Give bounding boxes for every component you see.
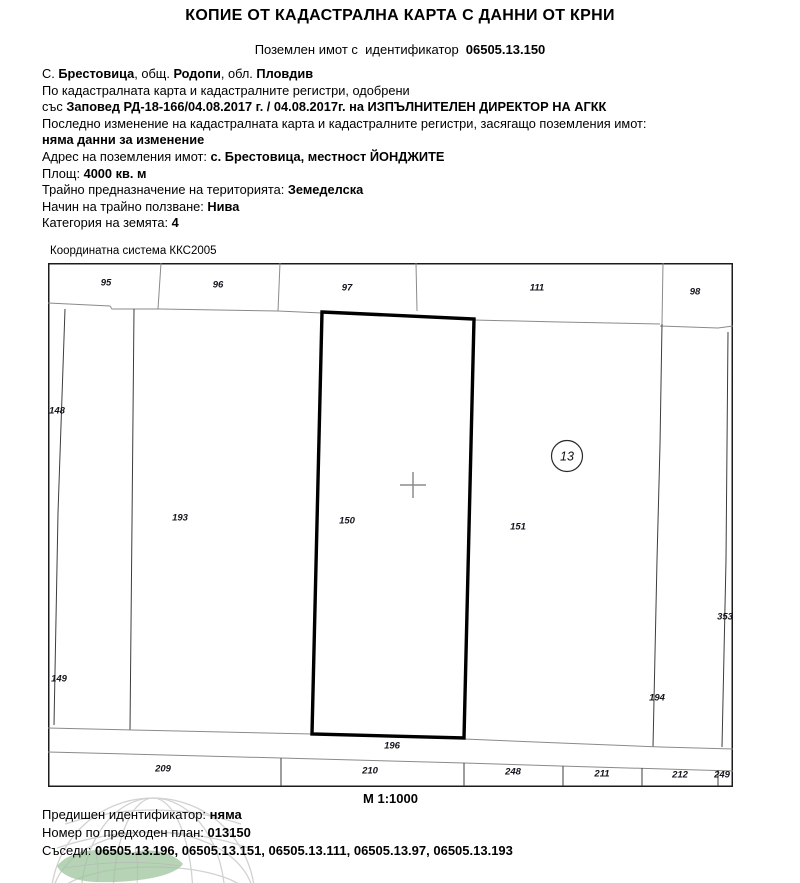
boundary-line [662,263,663,324]
cadastral-map: 13 9596971119814814919315015119435319620… [48,263,733,787]
boundary-line [660,326,733,328]
parcel-label-210: 210 [361,766,379,777]
text-run: Брестовица [58,66,134,81]
info-line: По кадастралната карта и кадастралните р… [42,83,646,100]
parcel-label-211: 211 [593,769,609,780]
parcel-label-98: 98 [690,287,701,298]
info-line: С. Брестовица, общ. Родопи, обл. Пловдив [42,66,646,83]
parcel-label-96: 96 [213,280,224,291]
text-run: Категория на земята: [42,215,172,230]
text-run: Площ: [42,166,84,181]
text-run: 4000 кв. м [84,166,147,181]
text-run: няма [210,807,242,822]
text-run: С. [42,66,58,81]
parcel-label-249: 249 [713,770,731,781]
boundary-line [653,324,662,747]
parcel-label-151: 151 [510,522,526,533]
info-line: Адрес на поземления имот: с. Брестовица,… [42,149,646,166]
page-title: КОПИЕ ОТ КАДАСТРАЛНА КАРТА С ДАННИ ОТ КР… [0,7,800,25]
parcel-label-149: 149 [51,674,68,685]
info-line: Категория на земята: 4 [42,215,646,232]
parcel-label-212: 212 [671,770,689,781]
text-run: Съседи: [42,843,95,858]
footer-info-block: Предишен идентификатор: нямаНомер по пре… [42,806,513,859]
text-run: , общ. [134,66,173,81]
parcel-label-148: 148 [49,406,66,417]
text-run: 06505.13.196, 06505.13.151, 06505.13.111… [95,843,513,858]
boundary-line [474,320,660,324]
info-line: Площ: 4000 кв. м [42,166,646,183]
parcel-boundaries [48,263,733,786]
control-point-number: 13 [560,449,574,463]
text-run: Номер по предходен план: [42,825,207,840]
property-info-block: С. Брестовица, общ. Родопи, обл. Пловдив… [42,66,646,232]
subtitle-prefix: Поземлен имот с идентификатор [255,42,459,57]
parcel-label-194: 194 [649,693,666,704]
info-line: Последно изменение на кадастралната карт… [42,116,646,133]
text-run: със [42,99,66,114]
text-run: Начин на трайно ползване: [42,199,207,214]
boundary-line [278,263,280,311]
boundary-line [48,728,312,734]
boundary-line [158,263,161,309]
parcel-label-353: 353 [717,612,733,623]
boundary-line [48,752,733,771]
boundary-line [48,303,322,313]
footer-line: Съседи: 06505.13.196, 06505.13.151, 0650… [42,842,513,860]
text-run: Земеделска [288,182,363,197]
parcel-label-95: 95 [101,278,112,289]
text-run: Адрес на поземления имот: [42,149,211,164]
cadastral-document-page: КОПИЕ ОТ КАДАСТРАЛНА КАРТА С ДАННИ ОТ КР… [0,0,800,883]
text-run: Последно изменение на кадастралната карт… [42,116,646,131]
text-run: , обл. [221,66,257,81]
parcel-label-97: 97 [342,283,353,294]
text-run: Заповед РД-18-166/04.08.2017 г. / 04.08.… [66,99,606,114]
text-run: По кадастралната карта и кадастралните р… [42,83,410,98]
parcel-identifier: 06505.13.150 [466,42,546,57]
parcel-label-193: 193 [172,513,189,524]
cadastral-map-svg: 13 9596971119814814919315015119435319620… [48,263,733,787]
footer-line: Номер по предходен план: 013150 [42,824,513,842]
subtitle: Поземлен имот с идентификатор06505.13.15… [0,42,800,57]
boundary-line [722,332,728,747]
control-point-13: 13 [552,441,583,472]
boundary-line [464,739,733,749]
text-run: няма данни за изменение [42,132,204,147]
text-run: Предишен идентификатор: [42,807,210,822]
parcel-label-196: 196 [384,741,401,752]
text-run: Трайно предназначение на територията: [42,182,288,197]
info-line: със Заповед РД-18-166/04.08.2017 г. / 04… [42,99,646,116]
parcel-center-cross [400,472,426,498]
parcel-label-111: 111 [530,283,544,294]
text-run: Пловдив [256,66,313,81]
text-run: 4 [172,215,179,230]
focus-parcel-outline [312,312,474,738]
text-run: 013150 [207,825,250,840]
boundary-line [416,263,417,311]
parcel-label-209: 209 [154,764,172,775]
footer-line: Предишен идентификатор: няма [42,806,513,824]
text-run: с. Брестовица, местност ЙОНДЖИТЕ [211,149,445,164]
map-scale-label: М 1:1000 [48,791,733,806]
boundary-line [54,309,65,725]
info-line: Начин на трайно ползване: Нива [42,199,646,216]
parcel-label-150: 150 [339,516,356,527]
info-line: няма данни за изменение [42,132,646,149]
boundary-line [130,309,134,730]
map-border [49,264,733,787]
parcel-label-248: 248 [504,767,522,778]
text-run: Нива [207,199,239,214]
coordinate-system-label: Координатна система ККС2005 [50,245,217,257]
text-run: Родопи [173,66,220,81]
parcel-labels: 9596971119814814919315015119435319620921… [49,278,733,781]
info-line: Трайно предназначение на територията: Зе… [42,182,646,199]
